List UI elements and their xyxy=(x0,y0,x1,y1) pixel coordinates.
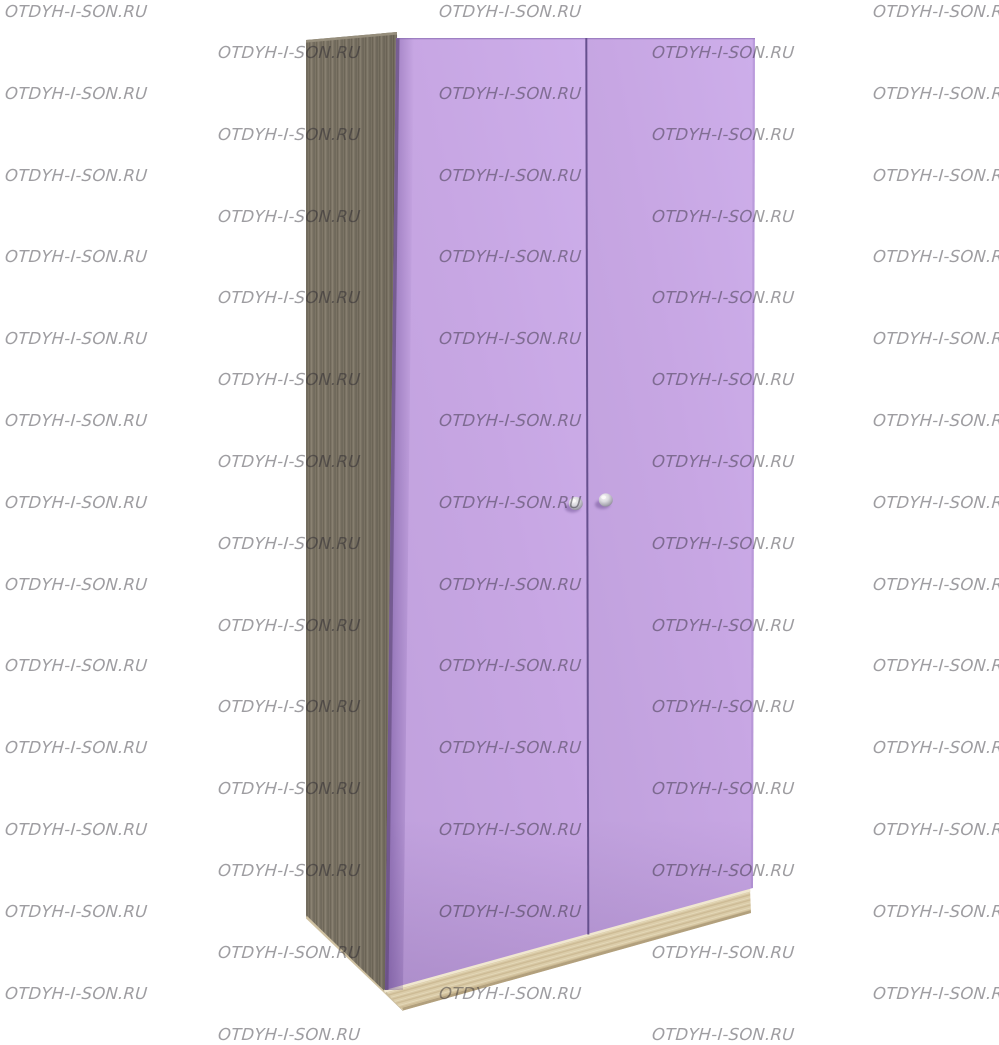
wardrobe-illustration xyxy=(0,0,999,1045)
doors-bottom-shading xyxy=(385,38,755,990)
product-image: OTDYH-I-SON.RUOTDYH-I-SON.RUOTDYH-I-SON.… xyxy=(0,0,999,1045)
